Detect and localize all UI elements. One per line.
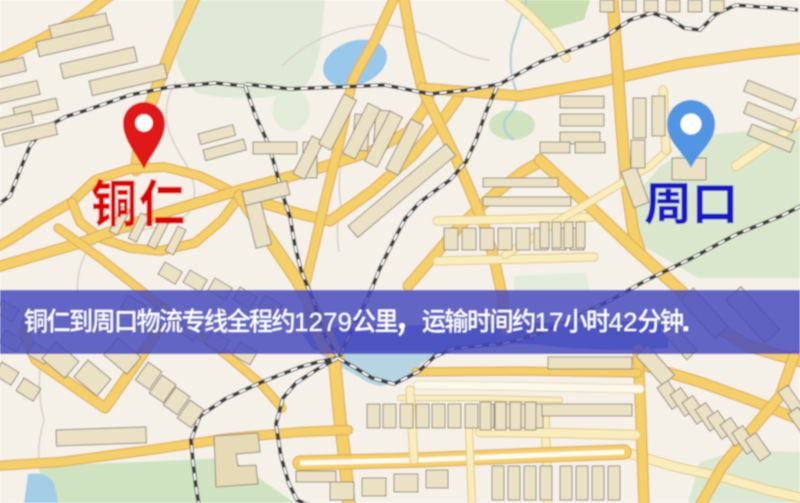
svg-text:2: 2	[623, 307, 637, 337]
svg-text:7: 7	[549, 307, 563, 337]
svg-text:2: 2	[309, 307, 323, 337]
svg-text:7: 7	[323, 307, 337, 337]
svg-text:1: 1	[535, 307, 549, 337]
svg-text:9: 9	[338, 307, 352, 337]
svg-text:1: 1	[294, 307, 308, 337]
svg-text:4: 4	[609, 307, 623, 337]
